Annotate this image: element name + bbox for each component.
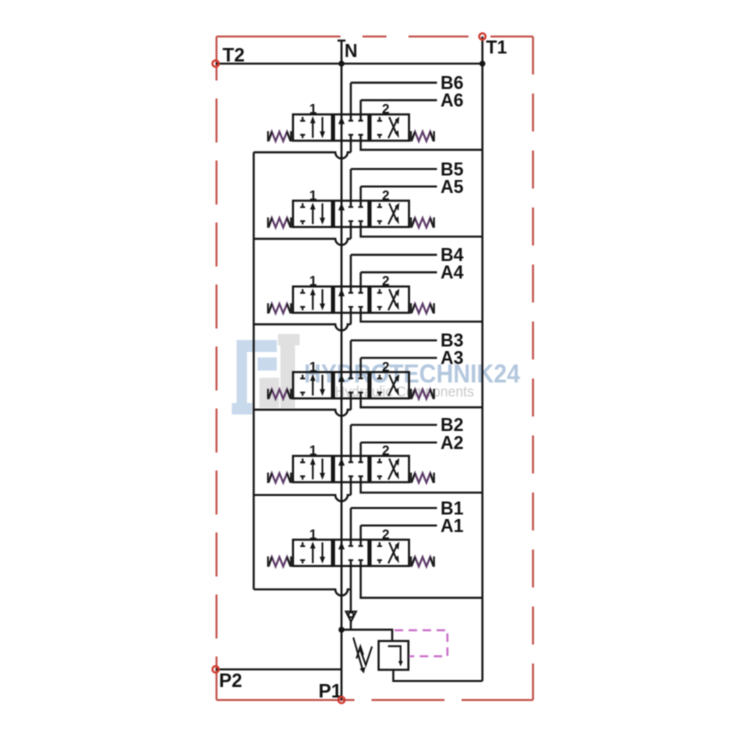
svg-text:2: 2	[382, 188, 390, 203]
svg-text:1: 1	[309, 274, 317, 289]
svg-text:A4: A4	[441, 263, 464, 283]
svg-text:2: 2	[382, 443, 390, 458]
svg-text:T1: T1	[486, 38, 507, 58]
svg-text:1: 1	[309, 359, 317, 374]
svg-text:A5: A5	[441, 177, 464, 197]
svg-text:2: 2	[382, 527, 390, 542]
svg-text:A3: A3	[441, 348, 464, 368]
svg-text:2: 2	[382, 359, 390, 374]
svg-text:1: 1	[309, 443, 317, 458]
svg-text:2: 2	[382, 102, 390, 117]
svg-text:N: N	[345, 41, 358, 61]
svg-text:P2: P2	[219, 671, 242, 692]
svg-text:T2: T2	[223, 46, 245, 67]
svg-text:1: 1	[309, 102, 317, 117]
svg-text:1: 1	[309, 527, 317, 542]
svg-text:A1: A1	[441, 516, 464, 536]
svg-text:A2: A2	[441, 433, 464, 453]
svg-text:2: 2	[382, 274, 390, 289]
svg-text:1: 1	[309, 188, 317, 203]
svg-text:A6: A6	[441, 91, 464, 111]
